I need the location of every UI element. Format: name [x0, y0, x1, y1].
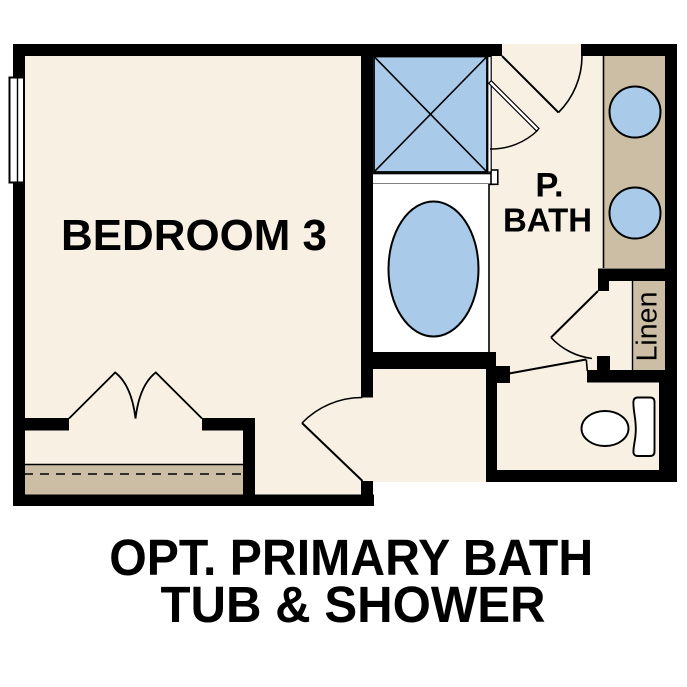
svg-text:BATH: BATH [503, 202, 592, 239]
svg-text:TUB & SHOWER: TUB & SHOWER [161, 576, 546, 633]
svg-text:BEDROOM 3: BEDROOM 3 [61, 211, 327, 260]
svg-text:Linen: Linen [632, 292, 664, 362]
svg-text:P.: P. [535, 167, 563, 205]
